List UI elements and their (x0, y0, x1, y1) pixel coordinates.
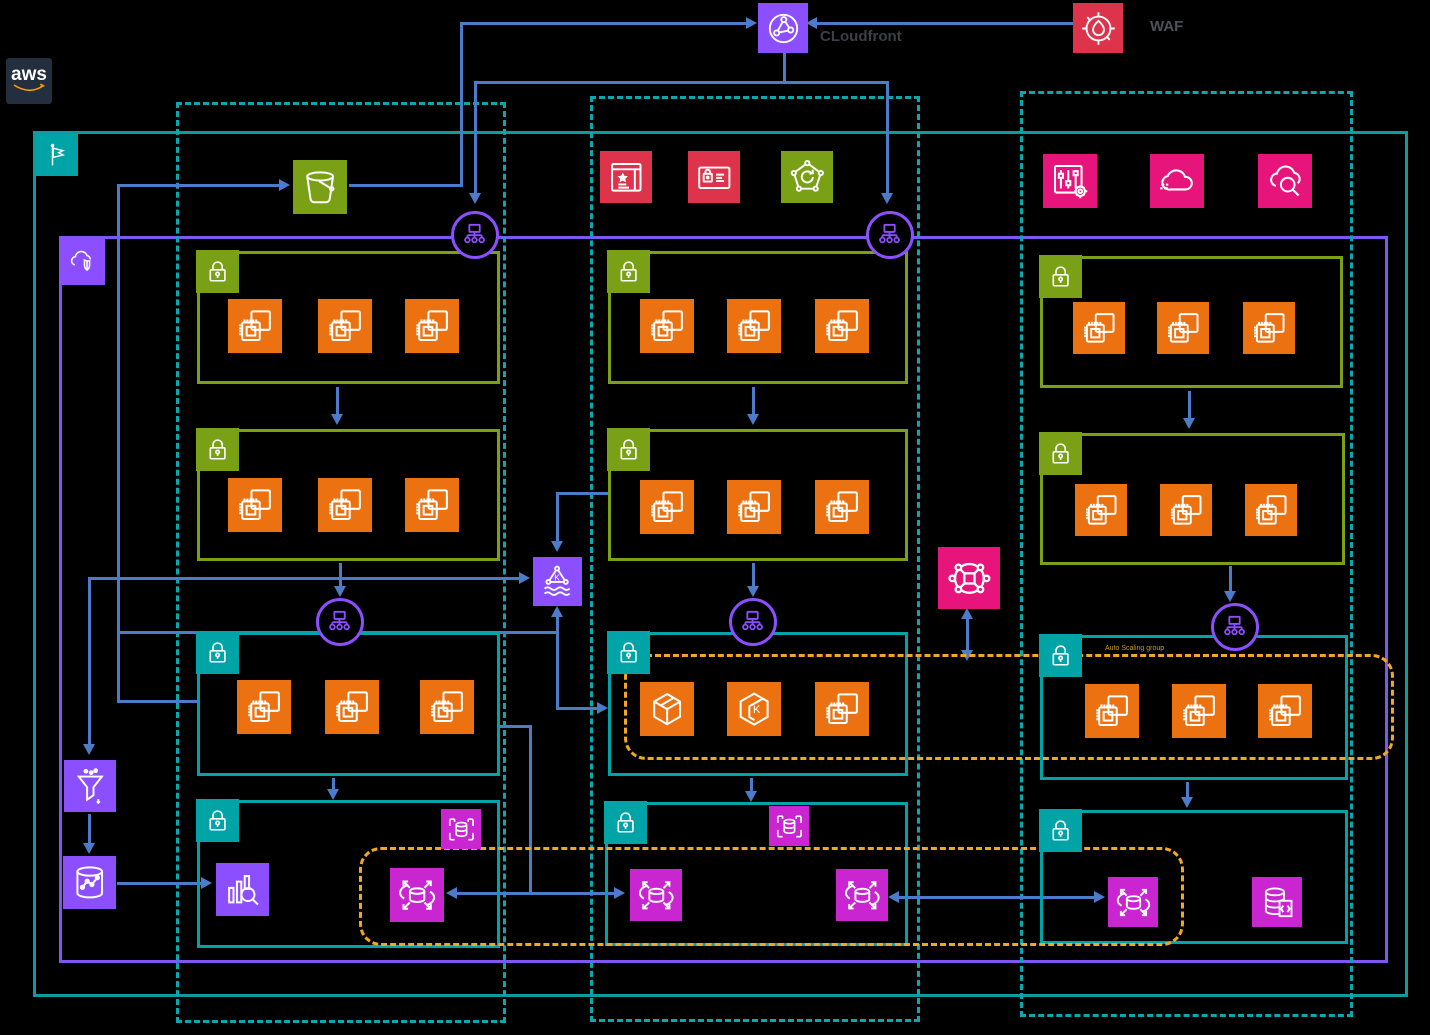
ec2-instance-icon (405, 299, 459, 353)
cloud-search-icon (1258, 154, 1312, 208)
security-group-lock-icon (607, 250, 650, 293)
ec2-instance-icon (640, 480, 694, 534)
ec2-instance-icon (1160, 484, 1212, 536)
subnet-lock-icon (604, 801, 647, 844)
transit-gateway-icon (938, 547, 1000, 609)
id-card-lock-icon (688, 151, 740, 203)
opensearch-icon (216, 863, 269, 916)
subnet-lock-icon (196, 631, 239, 674)
load-balancer-icon (451, 211, 499, 259)
ec2-instance-icon (640, 299, 694, 353)
ec2-instance-icon (325, 680, 379, 734)
ec2-instance-icon (405, 478, 459, 532)
msk-icon (533, 557, 582, 606)
subnet-lock-icon (1039, 809, 1082, 852)
systems-manager-icon (1043, 154, 1097, 208)
security-group-lock-icon (196, 428, 239, 471)
security-group-lock-icon (607, 428, 650, 471)
load-balancer-icon (1211, 603, 1259, 651)
subnet-lock-icon (1039, 634, 1082, 677)
ec2-instance-icon (1245, 484, 1297, 536)
global-database-icon (836, 869, 888, 921)
aws-logo-text: aws (11, 67, 47, 83)
database-script-icon (1252, 877, 1302, 927)
load-balancer-icon (729, 598, 777, 646)
aws-architecture-diagram: K K (0, 0, 1430, 1035)
ec2-instance-icon (1243, 302, 1295, 354)
ec2-instance-icon (1258, 684, 1312, 738)
security-group-lock-icon (1039, 255, 1082, 298)
load-balancer-icon (866, 211, 914, 259)
ec2-instance-icon (1075, 484, 1127, 536)
waf-icon (1073, 3, 1123, 53)
subnet-lock-icon (607, 631, 650, 674)
security-group-lock-icon (1039, 432, 1082, 475)
rds-proxy-icon (769, 806, 809, 846)
region-flag-icon (36, 134, 78, 176)
global-database-icon (390, 868, 444, 922)
ec2-instance-icon (1172, 684, 1226, 738)
global-database-icon (630, 869, 682, 921)
ec2-instance-icon (815, 480, 869, 534)
auto-scaling-group-box-databases (359, 847, 1184, 946)
ec2-instance-icon (237, 680, 291, 734)
ec2-instance-icon (318, 299, 372, 353)
auto-scaling-group-label: Auto Scaling group (1105, 645, 1164, 652)
analytics-db-icon (63, 856, 116, 909)
ec2-instance-icon (727, 299, 781, 353)
aws-logo: aws (6, 58, 52, 104)
ec2-instance-icon (228, 478, 282, 532)
kinesis-firehose-icon (64, 760, 116, 812)
ec2-instance-icon (228, 299, 282, 353)
ec2-instance-icon (815, 682, 869, 736)
load-balancer-icon (316, 598, 364, 646)
waf-label: WAF (1150, 18, 1183, 35)
subnet-lock-icon (196, 799, 239, 842)
ec2-instance-icon (1085, 684, 1139, 738)
vpc-shield-icon (59, 239, 105, 285)
ec2-instance-icon (1157, 302, 1209, 354)
rds-proxy-icon (441, 809, 481, 849)
ec2-instance-icon (318, 478, 372, 532)
ec2-instance-icon (420, 680, 474, 734)
security-group-lock-icon (196, 250, 239, 293)
browser-star-icon (600, 151, 652, 203)
container-icon (640, 682, 694, 736)
pentagon-deploy-icon (781, 151, 833, 203)
cloudfront-label: CLoudfront (820, 28, 902, 45)
ec2-instance-icon (727, 480, 781, 534)
cloudfront-icon (758, 3, 808, 53)
eks-icon (727, 682, 781, 736)
s3-bucket-icon (293, 160, 347, 214)
ec2-instance-icon (815, 299, 869, 353)
ec2-instance-icon (1073, 302, 1125, 354)
cloud-fast-icon (1150, 154, 1204, 208)
global-database-icon (1108, 877, 1158, 927)
aws-smile-icon (12, 83, 46, 95)
